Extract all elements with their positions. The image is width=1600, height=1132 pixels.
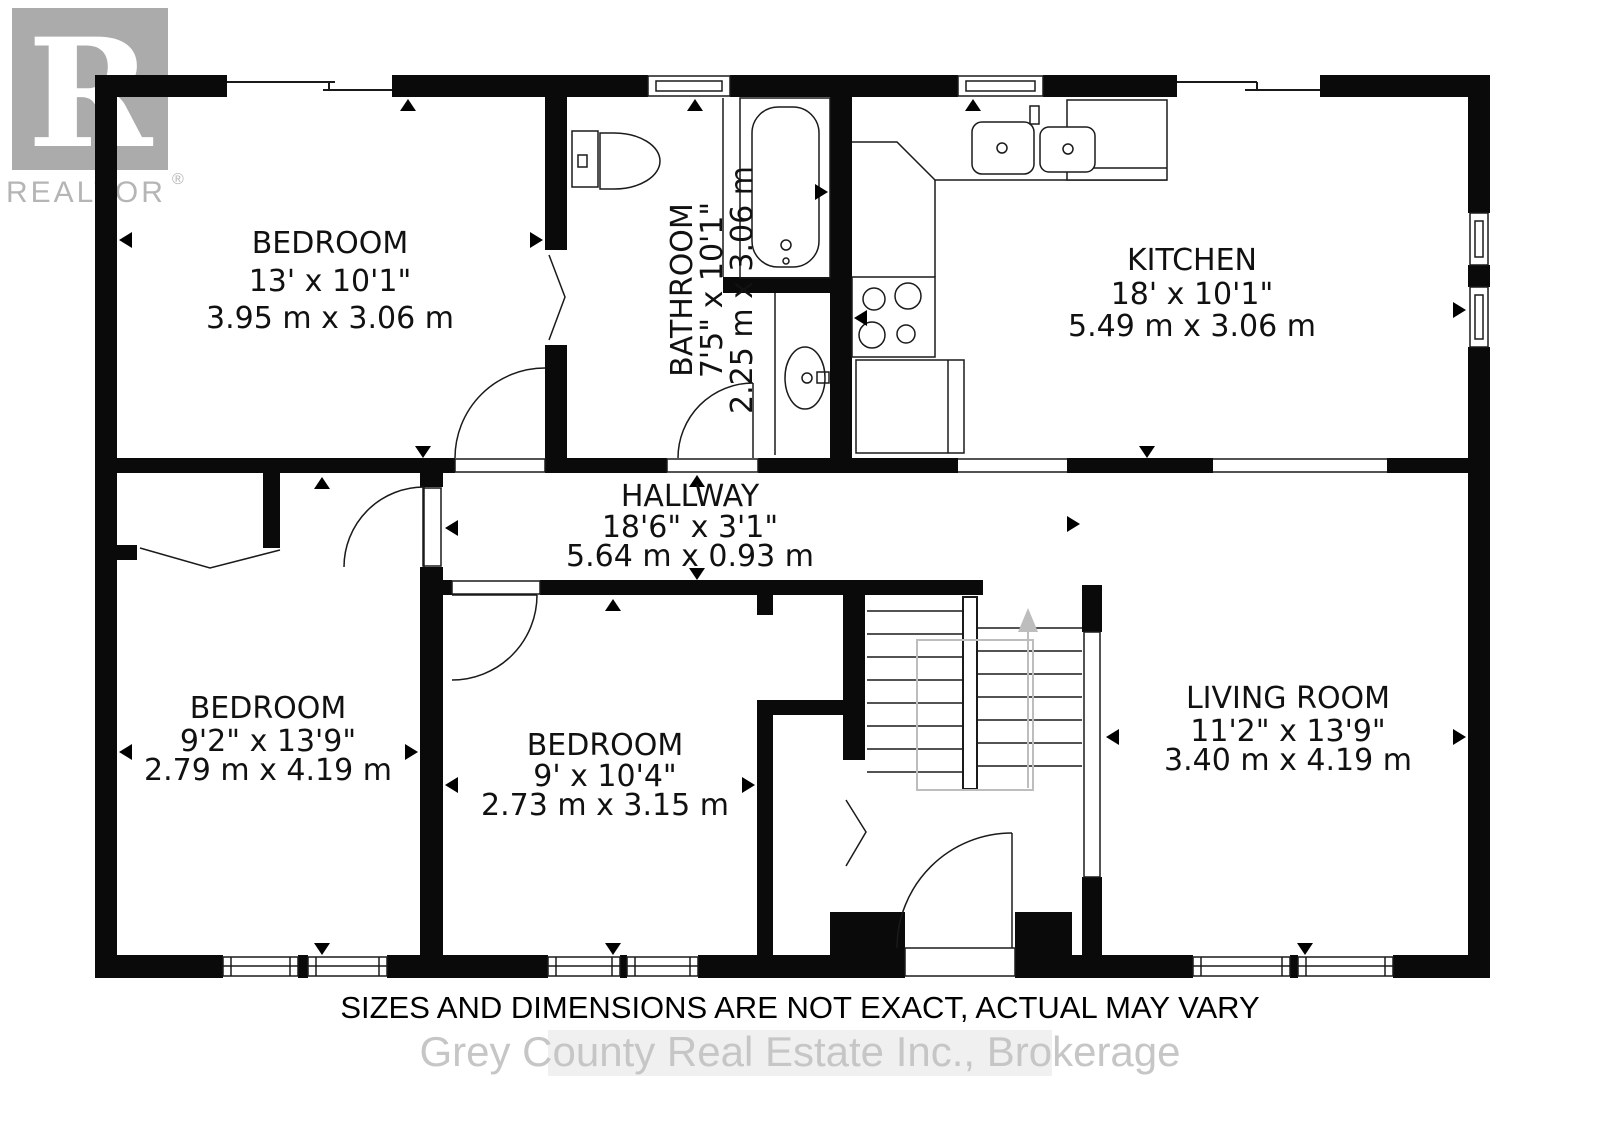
toilet-bowl <box>600 133 660 189</box>
staircase <box>867 597 1082 790</box>
room-name: KITCHEN <box>1127 243 1257 278</box>
wall-segment <box>1387 458 1468 473</box>
wall-segment <box>420 473 443 487</box>
understair-door-icon <box>846 800 866 866</box>
window-sliding <box>227 82 392 90</box>
living-room-wall <box>1082 877 1102 955</box>
wall-segment <box>1320 75 1490 97</box>
wall-segment <box>1043 75 1177 97</box>
wall-segment <box>830 97 852 458</box>
room-size-metric: 5.64 m x 0.93 m <box>566 539 814 574</box>
dimension-arrow-right-icon <box>815 184 828 200</box>
window <box>1470 213 1488 265</box>
footer: SIZES AND DIMENSIONS ARE NOT EXACT, ACTU… <box>340 990 1259 1076</box>
dimension-arrow-up-icon <box>687 99 703 111</box>
door-sill <box>455 459 545 472</box>
window <box>958 76 1043 96</box>
dimension-arrow-right-icon <box>742 777 755 793</box>
wall-segment <box>1067 458 1213 473</box>
closet-wall <box>117 545 137 560</box>
wall-segment <box>95 955 223 978</box>
room-size-metric: 5.49 m x 3.06 m <box>1068 309 1316 344</box>
front-door-swing-arc <box>897 833 1012 948</box>
dimension-arrow-down-icon <box>605 943 621 955</box>
window <box>1470 287 1488 347</box>
dimension-arrow-left-icon <box>1106 729 1119 745</box>
dimension-arrow-left-icon <box>119 232 132 248</box>
kitchen-sink-basin <box>1040 127 1095 172</box>
window <box>223 957 298 976</box>
label-bedroom-bottom-left: BEDROOM 9'2" x 13'9" 2.79 m x 4.19 m <box>144 691 392 788</box>
label-bathroom: BATHROOM 7'5" x 10'1" 2.25 m x 3.06 m <box>665 166 760 414</box>
dimension-arrow-down-icon <box>1297 943 1313 955</box>
wall-segment <box>545 458 667 473</box>
closet-divider-wall <box>773 700 843 715</box>
wall-segment <box>757 595 773 615</box>
windows <box>223 76 1488 976</box>
dimension-arrow-left-icon <box>445 777 458 793</box>
label-living-room: LIVING ROOM 11'2" x 13'9" 3.40 m x 4.19 … <box>1164 681 1412 778</box>
wall-segment <box>730 75 958 97</box>
wall-segment <box>420 567 443 955</box>
brokerage-watermark: Grey County Real Estate Inc., Brokerage <box>419 1028 1180 1075</box>
stair-railing <box>1084 632 1100 877</box>
room-name: BEDROOM <box>190 691 347 726</box>
bathtub-basin <box>752 107 819 267</box>
wall-segment <box>545 97 567 250</box>
label-hallway: HALLWAY 18'6" x 3'1" 5.64 m x 0.93 m <box>566 479 814 574</box>
window <box>1298 957 1393 976</box>
wall-segment <box>757 700 773 955</box>
dimension-arrow-up-icon <box>965 99 981 111</box>
wall-segment <box>117 458 455 473</box>
dimension-arrow-down-icon <box>314 943 330 955</box>
floor-plan-page: R REALTOR ® <box>0 0 1600 1132</box>
bathroom-sink <box>785 347 825 409</box>
dimension-arrow-right-icon <box>1453 729 1466 745</box>
wall-segment <box>620 955 627 978</box>
folding-door-icon <box>549 255 565 340</box>
door-swing-arc <box>344 487 424 567</box>
faucet-icon <box>1030 106 1039 124</box>
room-size-metric: 2.73 m x 3.15 m <box>481 788 729 823</box>
room-name: HALLWAY <box>621 479 760 514</box>
room-size-imperial: 18' x 10'1" <box>1111 277 1274 312</box>
entry-wall-stub <box>830 912 905 978</box>
window <box>648 76 730 96</box>
dimension-arrow-right-icon <box>1453 302 1466 318</box>
room-name: LIVING ROOM <box>1186 681 1390 716</box>
wall-segment <box>298 955 308 978</box>
stair-divider-rail <box>963 597 977 789</box>
wall-segment <box>1393 955 1490 978</box>
dimension-arrow-up-icon <box>605 599 621 611</box>
window <box>308 957 387 976</box>
dimension-arrow-left-icon <box>445 520 458 536</box>
wall-segment <box>392 75 648 97</box>
room-size-metric: 2.79 m x 4.19 m <box>144 753 392 788</box>
room-name: BEDROOM <box>252 226 409 261</box>
stairwell-wall <box>843 595 865 760</box>
living-room-wall <box>1082 585 1102 632</box>
door-swing-arc <box>452 595 537 680</box>
dimension-arrow-left-icon <box>119 744 132 760</box>
wall-segment <box>1468 75 1490 213</box>
kitchen-sink-basin <box>972 122 1034 174</box>
registered-trademark-icon: ® <box>172 171 184 188</box>
wall-segment <box>387 955 548 978</box>
floor-plan-drawing: R REALTOR ® <box>0 0 1600 1132</box>
dimension-arrow-up-icon <box>314 477 330 489</box>
window-sliding <box>1177 82 1320 90</box>
wall-segment <box>758 458 958 473</box>
wall-segment <box>545 345 567 458</box>
closet-bifold-door-icon <box>140 548 280 568</box>
room-size-metric: 3.40 m x 4.19 m <box>1164 743 1412 778</box>
dimension-arrow-right-icon <box>530 232 543 248</box>
window <box>548 957 620 976</box>
entry-wall-stub <box>1015 912 1072 978</box>
wall-segment <box>95 75 117 978</box>
toilet-tank <box>572 131 598 187</box>
closet-wall <box>263 473 280 548</box>
label-bedroom-top-left: BEDROOM 13' x 10'1" 3.95 m x 3.06 m <box>206 226 454 336</box>
window <box>1193 957 1290 976</box>
wall-segment <box>1468 347 1490 978</box>
label-bedroom-middle: BEDROOM 9' x 10'4" 2.73 m x 3.15 m <box>481 728 729 823</box>
door-sill <box>423 488 441 566</box>
stairwell-wall <box>843 580 983 595</box>
door-sill <box>667 459 758 472</box>
window <box>627 957 698 976</box>
dimension-arrow-right-icon <box>405 744 418 760</box>
front-door-sill <box>905 948 1015 976</box>
disclaimer-text: SIZES AND DIMENSIONS ARE NOT EXACT, ACTU… <box>340 990 1259 1025</box>
dimension-arrow-down-icon <box>415 446 431 458</box>
realtor-logo-text: REALTOR <box>6 176 166 209</box>
door-sill <box>452 581 540 594</box>
dimension-arrow-right-icon <box>1067 516 1080 532</box>
stair-up-arrow-icon <box>1018 608 1038 632</box>
label-kitchen: KITCHEN 18' x 10'1" 5.49 m x 3.06 m <box>1068 243 1316 344</box>
room-size-metric: 3.95 m x 3.06 m <box>206 301 454 336</box>
wall-segment <box>1290 955 1298 978</box>
dimension-arrow-down-icon <box>1139 446 1155 458</box>
room-name: BEDROOM <box>527 728 684 763</box>
room-size-metric: 2.25 m x 3.06 m <box>725 166 760 414</box>
room-size-imperial: 13' x 10'1" <box>249 264 412 299</box>
door-swing-arc <box>455 368 545 458</box>
dimension-arrow-up-icon <box>400 99 416 111</box>
wall-segment <box>1468 265 1490 287</box>
